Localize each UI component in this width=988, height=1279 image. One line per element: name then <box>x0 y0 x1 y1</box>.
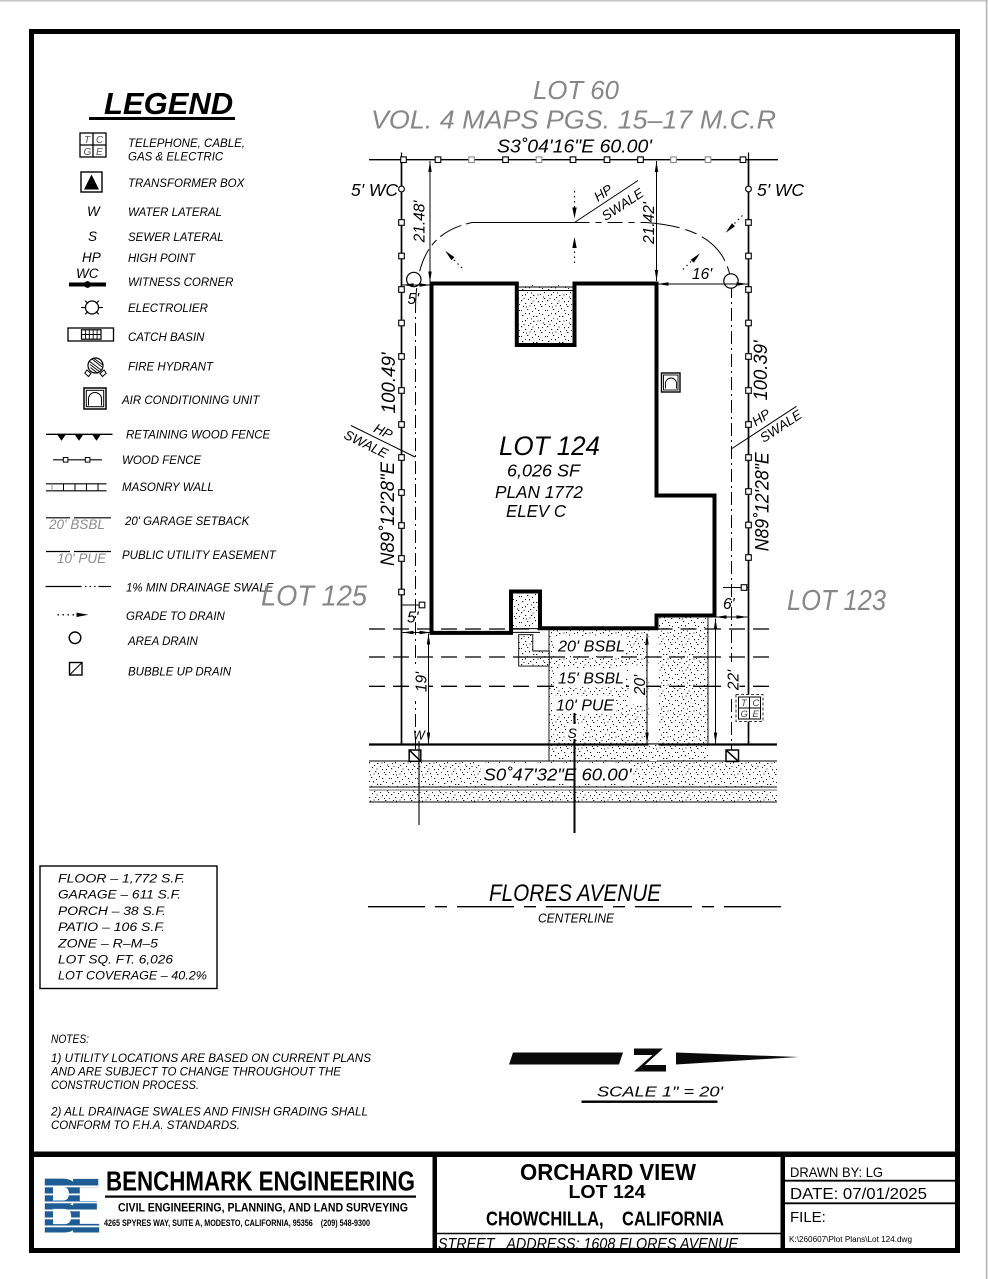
svg-text:DRAWN BY: LG: DRAWN BY: LG <box>790 1164 883 1180</box>
svg-text:PATIO – 106 S.F.: PATIO – 106 S.F. <box>58 920 165 934</box>
svg-text:LOT 124: LOT 124 <box>569 1181 647 1202</box>
svg-text:S: S <box>568 725 578 741</box>
svg-text:G: G <box>84 147 92 158</box>
svg-text:16': 16' <box>692 266 713 283</box>
svg-text:BUBBLE UP DRAIN: BUBBLE UP DRAIN <box>128 667 232 679</box>
svg-text:E: E <box>96 147 103 158</box>
svg-text:21.48': 21.48' <box>412 200 429 244</box>
svg-text:E: E <box>753 709 760 720</box>
svg-text:5' WC: 5' WC <box>351 180 398 200</box>
svg-text:PORCH – 38 S.F.: PORCH – 38 S.F. <box>58 904 166 918</box>
svg-text:S3˚04'16"E 60.00': S3˚04'16"E 60.00' <box>497 137 653 157</box>
svg-text:1) UTILITY LOCATIONS ARE B: 1) UTILITY LOCATIONS ARE BASED ON CURREN… <box>51 1051 371 1065</box>
svg-text:AREA DRAIN: AREA DRAIN <box>127 636 199 648</box>
svg-text:15' BSBL: 15' BSBL <box>558 671 624 688</box>
svg-text:AIR CONDITIONING UNIT: AIR CONDITIONING UNIT <box>121 395 260 407</box>
svg-text:LOT 125: LOT 125 <box>261 581 368 613</box>
svg-text:NOTES:: NOTES: <box>51 1032 89 1046</box>
svg-text:ELEV C: ELEV C <box>506 501 566 521</box>
svg-text:PLAN 1772: PLAN 1772 <box>495 482 583 502</box>
svg-text:ZONE – R–M–5: ZONE – R–M–5 <box>57 936 158 950</box>
svg-text:6': 6' <box>723 596 736 613</box>
svg-text:FILE:: FILE: <box>790 1209 826 1226</box>
svg-text:N89˚12'28"E: N89˚12'28"E <box>378 462 399 566</box>
svg-text:ELECTROLIER: ELECTROLIER <box>128 303 208 315</box>
svg-text:CIVIL ENGINEERING, PLANNING, A: CIVIL ENGINEERING, PLANNING, AND LAND SU… <box>118 1201 408 1215</box>
svg-text:PUBLIC UTILITY EASEMENT: PUBLIC UTILITY EASEMENT <box>122 550 277 562</box>
svg-text:CENTERLINE: CENTERLINE <box>538 912 615 926</box>
svg-text:N89˚12'28"E: N89˚12'28"E <box>753 452 774 551</box>
svg-text:2) ALL DRAINAGE SWALES AND: 2) ALL DRAINAGE SWALES AND FINISH GRADIN… <box>50 1105 368 1119</box>
svg-text:G: G <box>741 709 748 720</box>
svg-text:WOOD FENCE: WOOD FENCE <box>122 455 202 467</box>
svg-text:1% MIN DRAINAGE SWALE: 1% MIN DRAINAGE SWALE <box>126 583 274 595</box>
svg-text:LOT 60: LOT 60 <box>533 75 620 105</box>
svg-text:TELEPHONE, CABLE,: TELEPHONE, CABLE, <box>128 138 245 150</box>
svg-text:CHOWCHILLA, CALIFORNIA: CHOWCHILLA, CALIFORNIA <box>486 1209 724 1231</box>
svg-text:4265 SPYRES WAY, SUITE A, MODE: 4265 SPYRES WAY, SUITE A, MODESTO, CALIF… <box>104 1218 370 1228</box>
svg-text:GARAGE – 611 S.F.: GARAGE – 611 S.F. <box>58 888 181 902</box>
svg-text:WATER LATERAL: WATER LATERAL <box>128 207 222 219</box>
svg-text:WC: WC <box>76 266 99 281</box>
svg-text:20': 20' <box>632 674 649 696</box>
svg-text:20' BSBL: 20' BSBL <box>557 639 625 656</box>
svg-text:TRANSFORMER BOX: TRANSFORMER BOX <box>128 178 246 190</box>
svg-text:RETAINING WOOD FENCE: RETAINING WOOD FENCE <box>126 430 271 442</box>
svg-text:LOT 124: LOT 124 <box>499 431 600 461</box>
svg-text:LOT COVERAGE – 40.2%: LOT COVERAGE – 40.2% <box>58 969 207 983</box>
svg-text:SEWER LATERAL: SEWER LATERAL <box>128 232 224 244</box>
svg-text:21.42': 21.42' <box>641 201 658 245</box>
svg-text:10' PUE: 10' PUE <box>556 698 615 715</box>
svg-text:DATE: 07/01/2025: DATE: 07/01/2025 <box>790 1186 927 1203</box>
svg-text:T: T <box>84 135 91 146</box>
svg-text:GRADE TO DRAIN: GRADE TO DRAIN <box>126 611 226 623</box>
svg-text:10' PUE: 10' PUE <box>57 551 107 566</box>
svg-text:AND ARE SUBJECT TO CHANGE: AND ARE SUBJECT TO CHANGE THROUGHOUT THE <box>50 1065 342 1079</box>
svg-text:LOT 123: LOT 123 <box>787 585 886 617</box>
svg-text:CONFORM TO F.H.A. STANDARDS: CONFORM TO F.H.A. STANDARDS. <box>51 1118 240 1132</box>
svg-text:GAS & ELECTRIC: GAS & ELECTRIC <box>128 152 224 164</box>
svg-text:W: W <box>413 729 426 743</box>
svg-text:HP: HP <box>82 250 101 265</box>
svg-text:CONSTRUCTION PROCESS.: CONSTRUCTION PROCESS. <box>51 1078 199 1092</box>
svg-text:5': 5' <box>408 291 421 308</box>
svg-text:BENCHMARK ENGINEERING: BENCHMARK ENGINEERING <box>106 1166 415 1197</box>
svg-text:LOT SQ. FT. 6,026: LOT SQ. FT. 6,026 <box>58 953 173 967</box>
svg-text:22': 22' <box>726 669 743 691</box>
svg-text:S: S <box>88 229 97 244</box>
svg-text:CATCH BASIN: CATCH BASIN <box>128 332 205 344</box>
svg-text:W: W <box>87 204 101 219</box>
svg-text:SCALE 1" = 20': SCALE 1" = 20' <box>597 1085 725 1101</box>
svg-text:HIGH POINT: HIGH POINT <box>128 253 196 265</box>
svg-text:WITNESS CORNER: WITNESS CORNER <box>128 277 233 289</box>
svg-text:5' WC: 5' WC <box>757 180 804 200</box>
svg-text:FLOOR – 1,772 S.F.: FLOOR – 1,772 S.F. <box>58 872 185 886</box>
svg-text:MASONRY WALL: MASONRY WALL <box>122 482 214 494</box>
svg-text:E: E <box>70 1162 101 1250</box>
svg-text:FLORES AVENUE: FLORES AVENUE <box>489 880 662 907</box>
svg-text:K:\260607\Plot Plans\Lot 124.d: K:\260607\Plot Plans\Lot 124.dwg <box>789 1235 912 1244</box>
svg-text:C: C <box>753 698 760 709</box>
svg-text:20' BSBL: 20' BSBL <box>48 517 105 532</box>
svg-text:5': 5' <box>407 610 420 627</box>
svg-text:LEGEND: LEGEND <box>104 86 233 121</box>
svg-text:VOL. 4 MAPS PGS. 15–17 M.C.R: VOL. 4 MAPS PGS. 15–17 M.C.R <box>371 105 776 135</box>
svg-text:STREET ADDRESS: 1608 FLORE: STREET ADDRESS: 1608 FLORES AVENUE <box>438 1236 739 1253</box>
svg-text:100.39': 100.39' <box>751 339 772 400</box>
svg-text:6,026 SF: 6,026 SF <box>507 461 581 481</box>
svg-text:FIRE HYDRANT: FIRE HYDRANT <box>128 362 214 374</box>
svg-text:S0˚47'32"E 60.00': S0˚47'32"E 60.00' <box>484 765 633 785</box>
svg-text:20' GARAGE SETBACK: 20' GARAGE SETBACK <box>124 516 251 528</box>
svg-text:C: C <box>96 135 104 146</box>
svg-text:19': 19' <box>414 671 431 692</box>
svg-text:100.49': 100.49' <box>379 351 400 413</box>
